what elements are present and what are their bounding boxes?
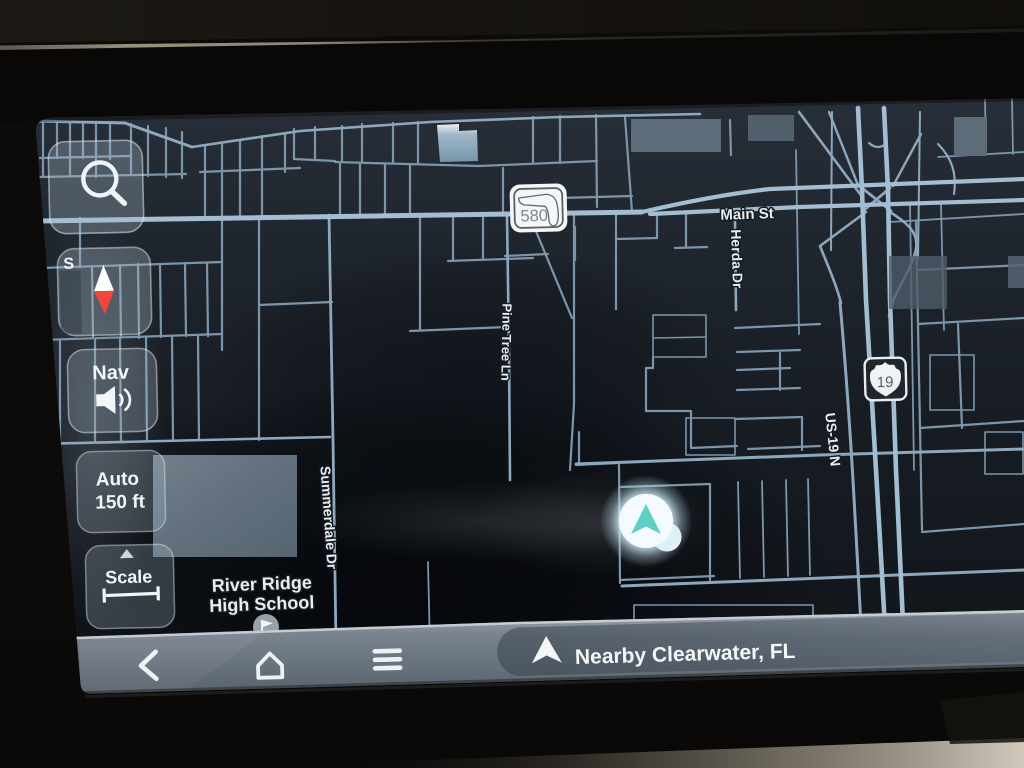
svg-text:High School: High School bbox=[209, 592, 315, 616]
svg-text:S: S bbox=[63, 256, 74, 273]
svg-text:19: 19 bbox=[877, 374, 894, 391]
svg-text:Auto: Auto bbox=[96, 469, 140, 491]
svg-text:Pine Tree Ln: Pine Tree Ln bbox=[498, 303, 514, 381]
svg-text:580: 580 bbox=[520, 207, 548, 226]
svg-text:Scale: Scale bbox=[105, 566, 152, 587]
svg-text:Nav: Nav bbox=[92, 362, 130, 385]
svg-text:150 ft: 150 ft bbox=[95, 491, 146, 513]
svg-text:Herda Dr: Herda Dr bbox=[728, 229, 746, 289]
svg-text:Main St: Main St bbox=[720, 205, 774, 224]
